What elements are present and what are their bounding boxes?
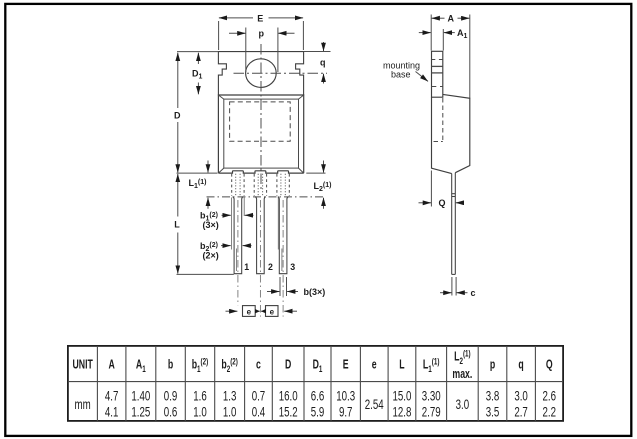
svg-text:D: D xyxy=(285,358,291,372)
svg-text:3.30: 3.30 xyxy=(422,389,441,404)
svg-text:(2×): (2×) xyxy=(203,250,219,260)
svg-text:5.9: 5.9 xyxy=(311,405,325,420)
svg-text:3.0: 3.0 xyxy=(456,397,470,412)
svg-text:p: p xyxy=(490,358,496,372)
svg-text:3: 3 xyxy=(290,262,295,272)
svg-text:2.79: 2.79 xyxy=(422,405,441,420)
svg-text:e: e xyxy=(270,307,275,316)
svg-text:15.0: 15.0 xyxy=(392,389,411,404)
svg-text:0.9: 0.9 xyxy=(164,389,178,404)
svg-text:6.6: 6.6 xyxy=(311,389,325,404)
svg-text:base: base xyxy=(391,70,411,80)
svg-text:3.8: 3.8 xyxy=(486,389,500,404)
svg-text:p: p xyxy=(259,29,265,39)
svg-text:2.7: 2.7 xyxy=(514,405,528,420)
svg-text:A: A xyxy=(448,14,455,24)
svg-text:c: c xyxy=(256,358,261,372)
svg-text:1.0: 1.0 xyxy=(223,405,237,420)
svg-text:1.3: 1.3 xyxy=(223,389,237,404)
svg-text:2.54: 2.54 xyxy=(365,397,384,412)
svg-text:L: L xyxy=(399,358,405,372)
svg-text:max.: max. xyxy=(452,367,472,381)
svg-text:Q: Q xyxy=(546,358,553,372)
svg-text:12.8: 12.8 xyxy=(392,405,411,420)
svg-text:4.7: 4.7 xyxy=(105,389,119,404)
svg-text:10.3: 10.3 xyxy=(336,389,355,404)
svg-text:L: L xyxy=(174,220,180,230)
svg-text:4.1: 4.1 xyxy=(105,405,119,420)
svg-text:1.6: 1.6 xyxy=(193,389,207,404)
svg-text:e: e xyxy=(247,307,252,316)
svg-text:1.25: 1.25 xyxy=(131,405,150,420)
svg-text:9.7: 9.7 xyxy=(339,405,353,420)
svg-text:2: 2 xyxy=(268,262,273,272)
svg-text:q: q xyxy=(320,58,326,68)
svg-text:D: D xyxy=(174,111,181,121)
svg-text:E: E xyxy=(257,13,263,23)
svg-text:mm: mm xyxy=(75,397,91,412)
svg-text:c: c xyxy=(471,288,476,298)
svg-text:15.2: 15.2 xyxy=(279,405,298,420)
svg-text:b: b xyxy=(168,358,174,372)
svg-text:0.6: 0.6 xyxy=(164,405,178,420)
svg-text:1.40: 1.40 xyxy=(131,389,150,404)
svg-text:0.7: 0.7 xyxy=(252,389,266,404)
svg-text:16.0: 16.0 xyxy=(279,389,298,404)
svg-text:q: q xyxy=(518,358,523,372)
svg-text:E: E xyxy=(343,358,349,372)
svg-text:UNIT: UNIT xyxy=(72,358,93,372)
svg-text:3.5: 3.5 xyxy=(486,405,500,420)
svg-text:b(3×): b(3×) xyxy=(304,287,326,297)
svg-text:0.4: 0.4 xyxy=(252,405,266,420)
svg-text:2.2: 2.2 xyxy=(542,405,556,420)
svg-text:(3×): (3×) xyxy=(203,220,219,230)
svg-text:e: e xyxy=(372,358,377,372)
svg-text:2.6: 2.6 xyxy=(542,389,556,404)
svg-text:1.0: 1.0 xyxy=(193,405,207,420)
svg-text:A: A xyxy=(108,358,114,372)
svg-text:3.0: 3.0 xyxy=(514,389,528,404)
svg-text:Q: Q xyxy=(439,198,446,208)
svg-text:1: 1 xyxy=(244,262,249,272)
